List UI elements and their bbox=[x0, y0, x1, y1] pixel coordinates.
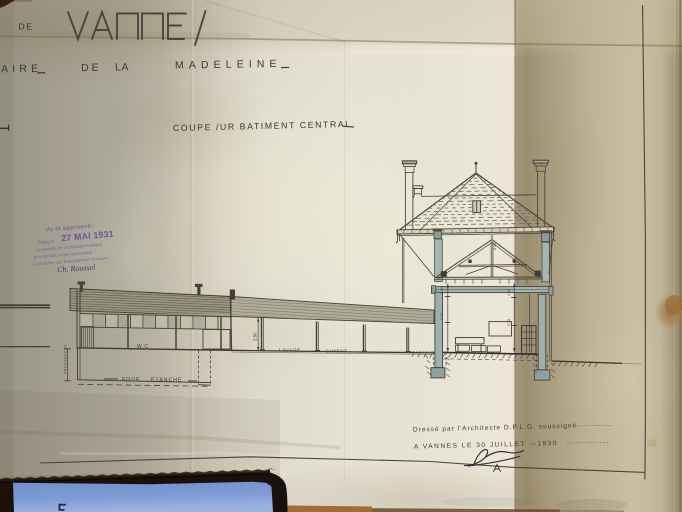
svg-text:1.40: 1.40 bbox=[440, 287, 444, 294]
svg-text:ÉTANCHE: ÉTANCHE bbox=[151, 377, 182, 384]
svg-text:DE: DE bbox=[81, 62, 102, 74]
svg-text:TROTTOIR: TROTTOIR bbox=[409, 350, 435, 355]
svg-text:MADELEINE: MADELEINE bbox=[175, 58, 282, 72]
svg-text:CIMENT: CIMENT bbox=[326, 348, 348, 353]
svg-text:LAVAGE: LAVAGE bbox=[279, 347, 301, 352]
svg-text:DE: DE bbox=[19, 22, 34, 32]
svg-text:PROFONDEUR: PROFONDEUR bbox=[64, 344, 68, 374]
svg-text:AIRE: AIRE bbox=[1, 63, 42, 76]
svg-text:4.50: 4.50 bbox=[507, 289, 511, 296]
svg-text:0.40: 0.40 bbox=[493, 243, 497, 250]
svg-text:LA: LA bbox=[115, 61, 129, 73]
svg-text:FO//E: FO//E bbox=[122, 377, 141, 383]
svg-text:2.50: 2.50 bbox=[253, 332, 258, 341]
svg-text:1.10: 1.10 bbox=[507, 319, 511, 326]
svg-text:2.20: 2.20 bbox=[440, 313, 444, 320]
